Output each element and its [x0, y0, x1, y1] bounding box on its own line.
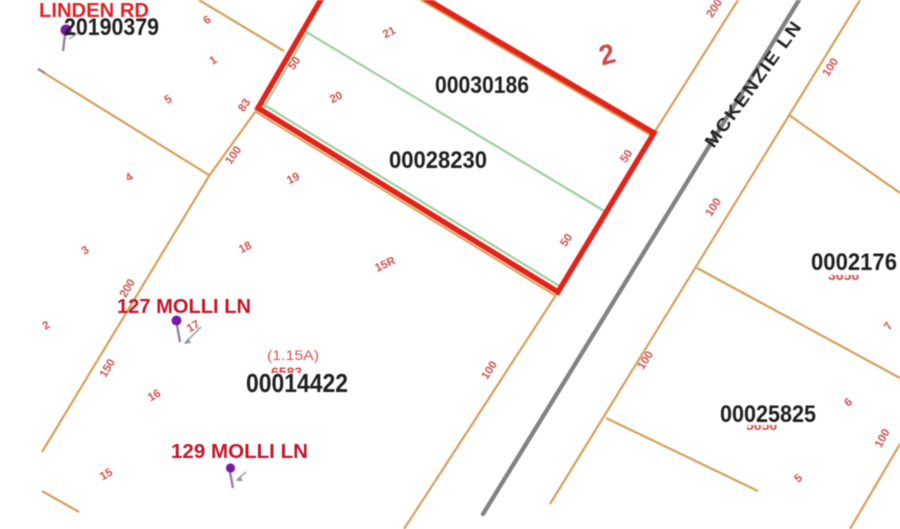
svg-text:00014422: 00014422	[246, 368, 348, 398]
svg-text:127 MOLLI LN: 127 MOLLI LN	[117, 296, 251, 318]
svg-text:LINDEN RD: LINDEN RD	[39, 0, 149, 22]
svg-text:(1.15A): (1.15A)	[267, 348, 319, 363]
svg-text:00028230: 00028230	[389, 147, 487, 174]
svg-text:129 MOLLI LN: 129 MOLLI LN	[171, 441, 308, 463]
svg-text:0002176: 0002176	[811, 249, 897, 276]
svg-text:00030186: 00030186	[435, 72, 529, 99]
svg-text:00025825: 00025825	[720, 401, 816, 428]
